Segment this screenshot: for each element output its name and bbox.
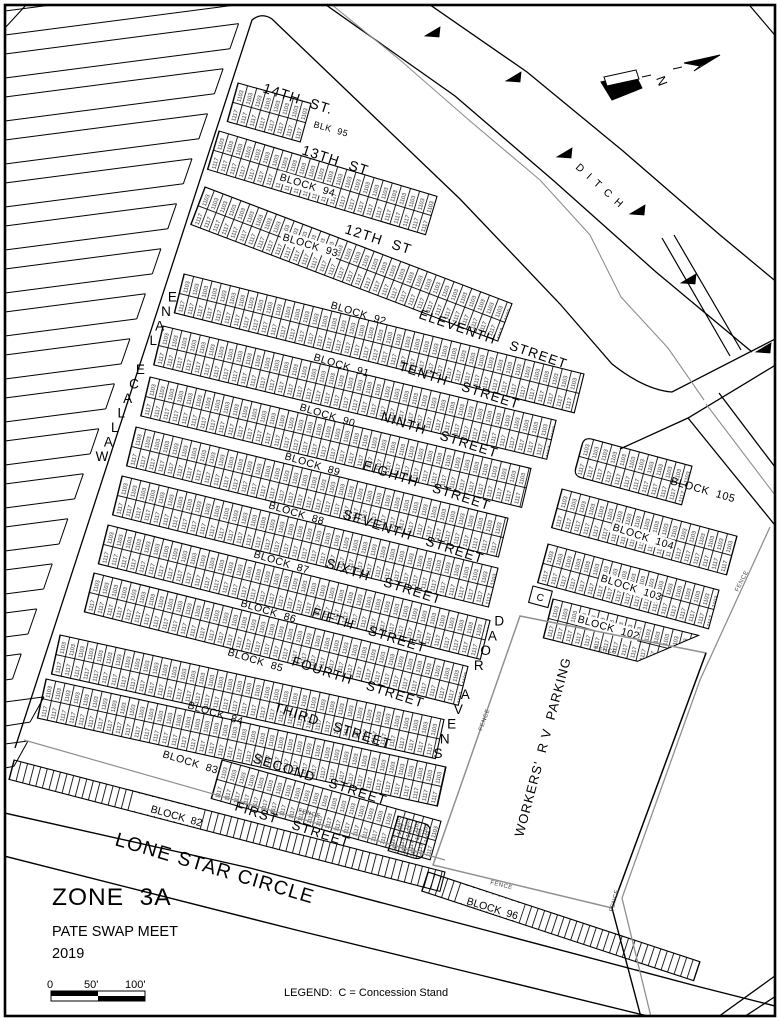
- svg-text:100': 100': [125, 979, 145, 991]
- svg-text:L: L: [149, 333, 157, 348]
- svg-text:A: A: [104, 435, 113, 450]
- svg-text:A: A: [461, 687, 470, 702]
- svg-text:R: R: [474, 658, 484, 673]
- svg-text:N: N: [440, 731, 450, 746]
- svg-text:L: L: [111, 420, 119, 435]
- svg-text:50': 50': [84, 979, 98, 991]
- svg-text:V: V: [454, 702, 463, 717]
- svg-text:E: E: [136, 362, 145, 377]
- svg-text:2019: 2019: [52, 946, 84, 962]
- svg-text:S: S: [433, 746, 442, 761]
- svg-text:A: A: [123, 391, 132, 406]
- svg-text:A: A: [488, 628, 497, 643]
- svg-text:D: D: [494, 614, 504, 629]
- svg-text:E: E: [168, 290, 177, 305]
- svg-text:E: E: [447, 717, 456, 732]
- svg-text:PATE SWAP MEET: PATE SWAP MEET: [52, 924, 178, 940]
- svg-text:N: N: [161, 304, 171, 319]
- svg-text:O: O: [480, 643, 491, 658]
- svg-text:0: 0: [47, 979, 53, 991]
- svg-text:A: A: [155, 319, 164, 334]
- svg-text:LEGEND: C = Concession Stand: LEGEND: C = Concession Stand: [284, 987, 448, 999]
- svg-text:C: C: [129, 377, 139, 392]
- svg-text:L: L: [117, 406, 125, 421]
- svg-text:W: W: [96, 449, 109, 464]
- svg-text:ZONE 3A: ZONE 3A: [52, 884, 172, 911]
